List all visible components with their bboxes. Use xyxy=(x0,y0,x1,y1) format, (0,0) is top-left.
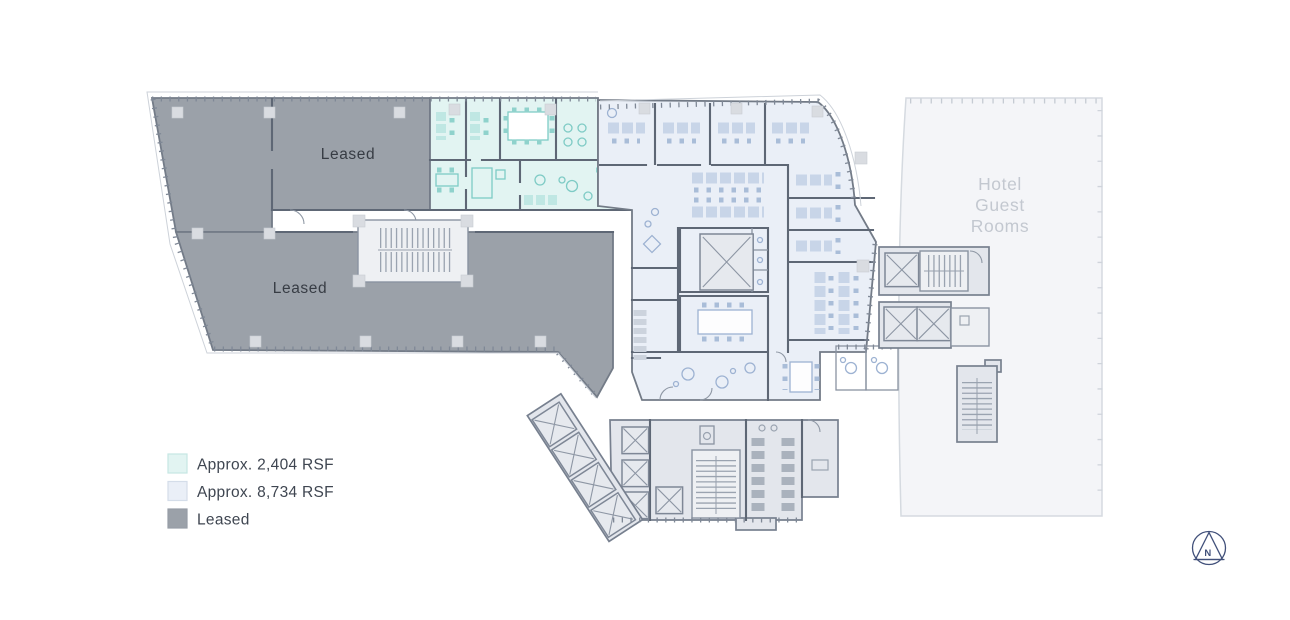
hotel-label-line1: Hotel xyxy=(978,174,1022,194)
hotel-stair xyxy=(957,360,1001,442)
hotel-label-line2: Guest xyxy=(975,195,1025,215)
suite-8734-region xyxy=(598,100,898,400)
bottom-core xyxy=(610,420,838,530)
legend-label-2404: Approx. 2,404 RSF xyxy=(197,457,334,474)
leased-upper-label: Leased xyxy=(321,146,375,163)
legend-label-8734: Approx. 8,734 RSF xyxy=(197,484,334,501)
leased-region-upper: Leased xyxy=(152,98,430,232)
floor-plan-svg: Hotel Guest Rooms Leased Leased xyxy=(0,0,1290,620)
leased-lower-label: Leased xyxy=(273,280,327,297)
hotel-label-line3: Rooms xyxy=(971,216,1029,236)
floor-plan-canvas: Hotel Guest Rooms Leased Leased xyxy=(0,0,1290,620)
center-elevator xyxy=(700,234,753,290)
right-service-block-lower xyxy=(879,302,989,348)
legend-item-8734: Approx. 8,734 RSF xyxy=(168,482,334,502)
legend-item-2404: Approx. 2,404 RSF xyxy=(168,454,334,474)
legend-swatch-2404 xyxy=(168,454,187,473)
legend-swatch-8734 xyxy=(168,482,187,501)
legend-item-leased: Leased xyxy=(168,509,250,529)
north-label: N xyxy=(1204,548,1211,559)
north-compass-icon: N xyxy=(1193,532,1226,565)
legend-label-leased: Leased xyxy=(197,512,250,529)
legend: Approx. 2,404 RSF Approx. 8,734 RSF Leas… xyxy=(168,454,334,529)
right-service-block-upper xyxy=(879,247,989,295)
leased-stair xyxy=(353,215,473,287)
legend-swatch-leased xyxy=(168,509,187,528)
